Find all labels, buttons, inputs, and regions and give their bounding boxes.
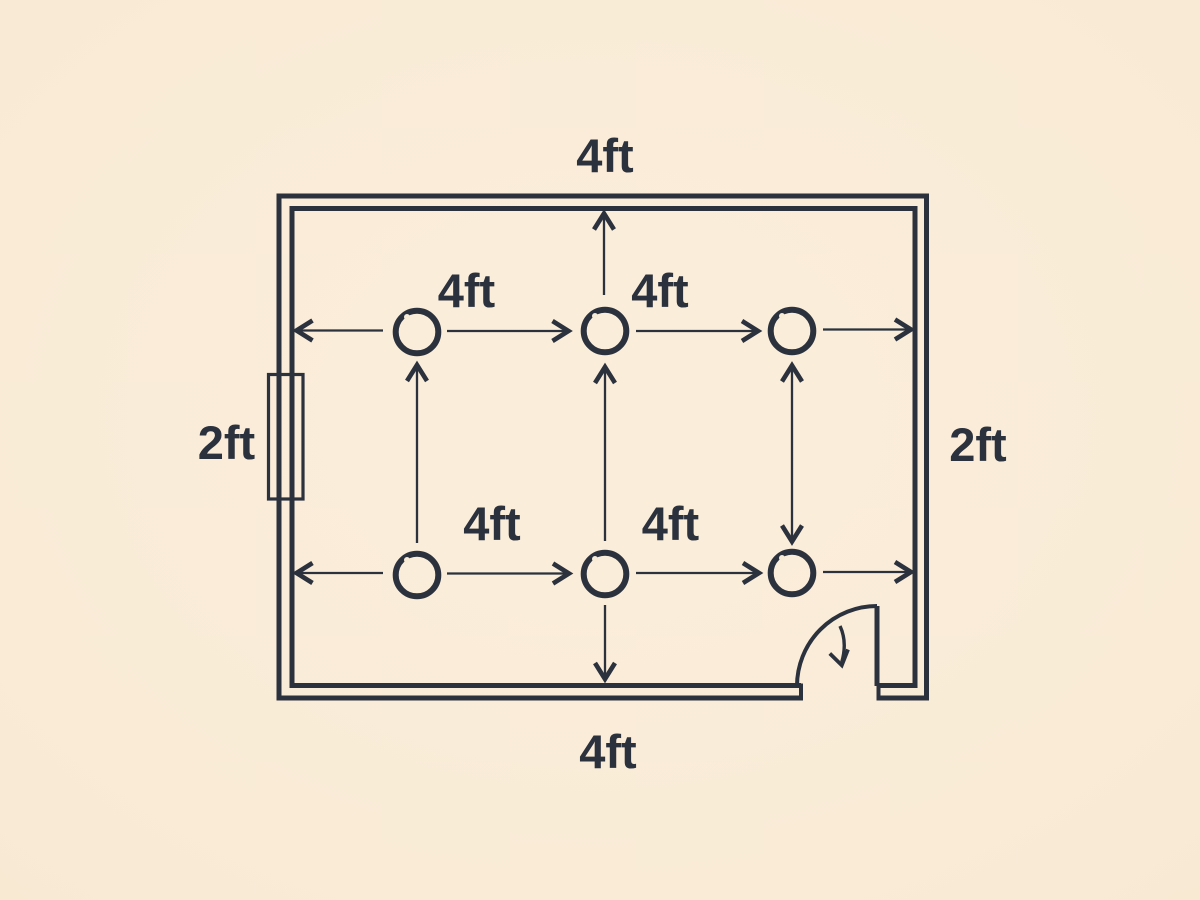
svg-text:4ft: 4ft	[642, 497, 700, 550]
svg-text:2ft: 2ft	[949, 418, 1007, 471]
svg-text:4ft: 4ft	[438, 264, 496, 317]
svg-text:4ft: 4ft	[463, 497, 521, 550]
svg-text:4ft: 4ft	[576, 129, 634, 182]
svg-text:4ft: 4ft	[579, 725, 637, 778]
svg-text:2ft: 2ft	[198, 416, 256, 469]
svg-text:4ft: 4ft	[631, 264, 689, 317]
